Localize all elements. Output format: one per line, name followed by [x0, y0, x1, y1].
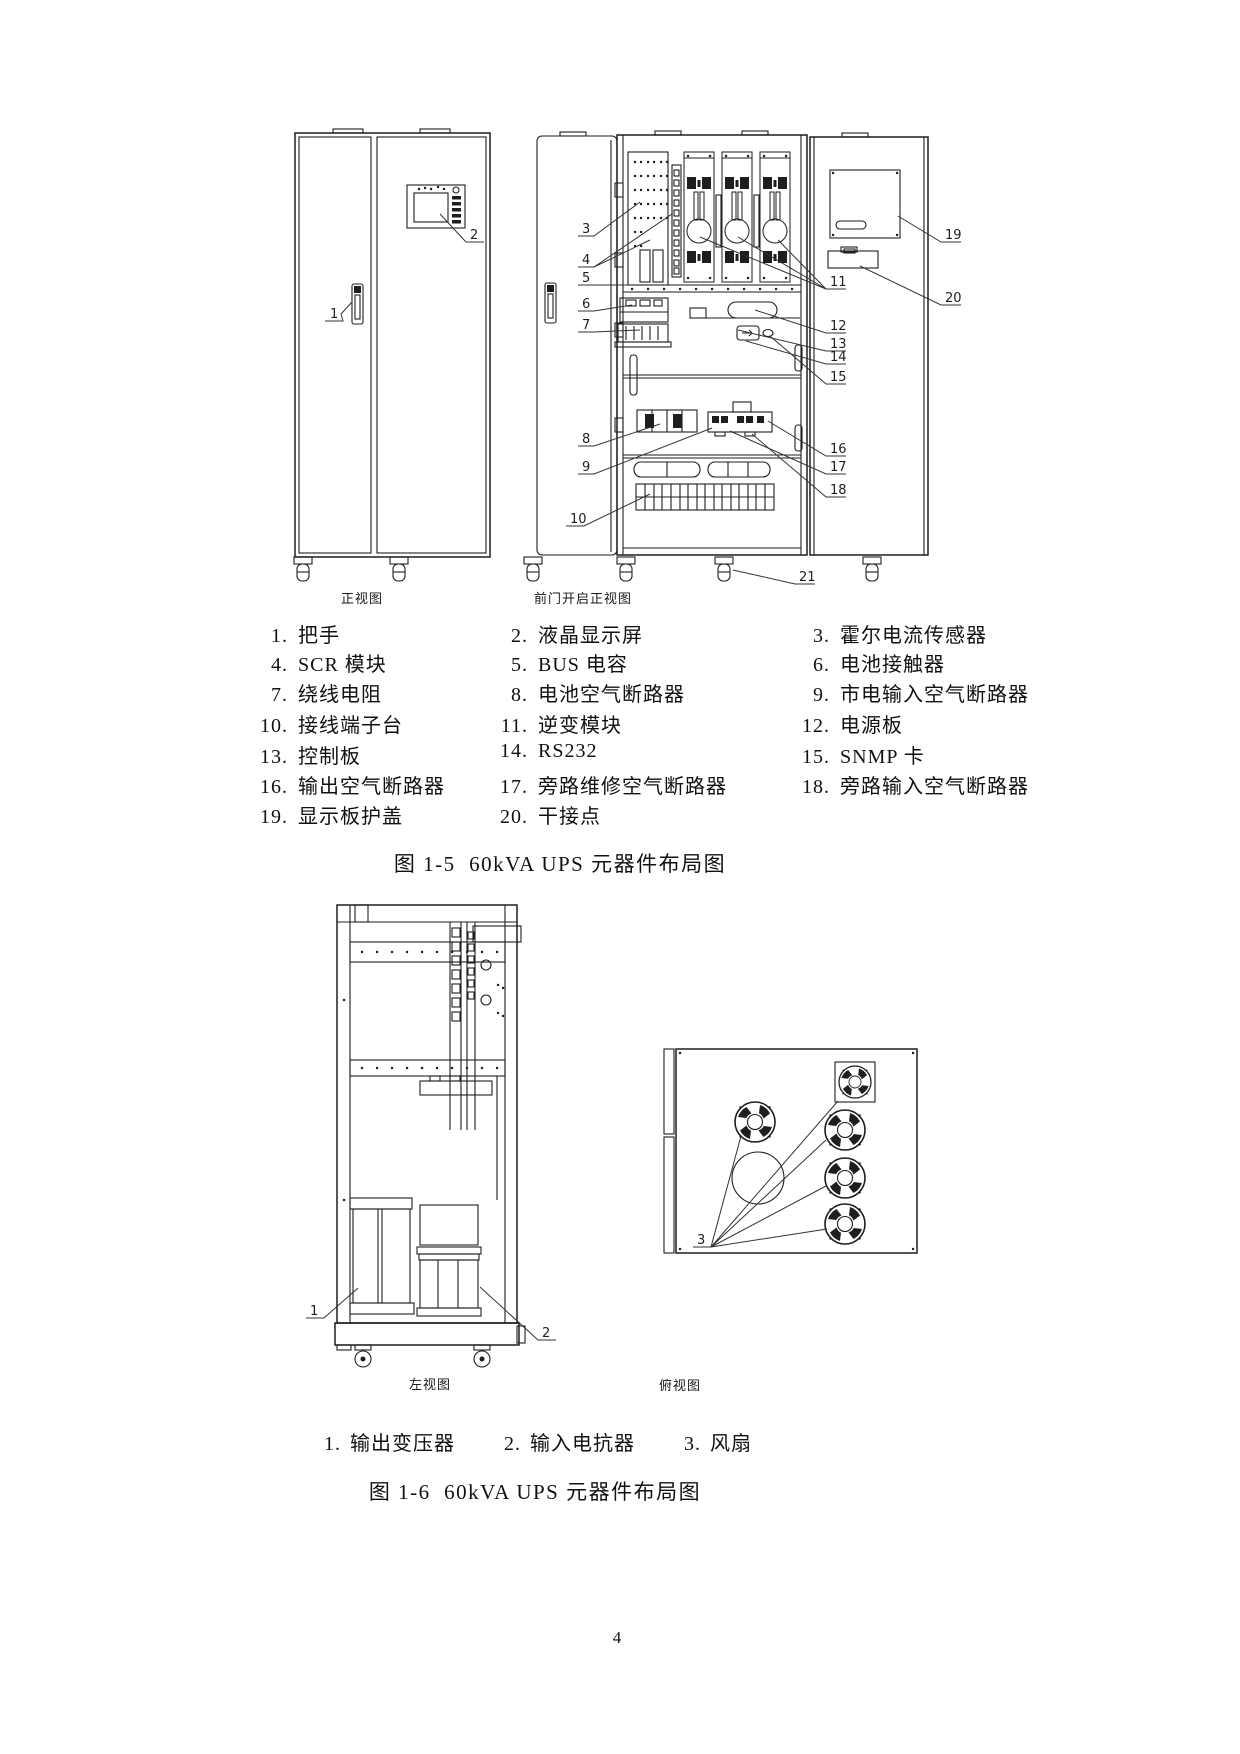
legend-item-1-6-2: 2.输入电抗器: [503, 1427, 635, 1456]
figure-1-6-caption: 图 1-6 60kVA UPS 元器件布局图: [369, 1476, 701, 1506]
manual-page: 1 2 3 4 5 6 7 8 9 10 11 12: [0, 0, 1240, 1754]
legend-item-1-6-3: 3.风扇: [683, 1427, 752, 1456]
legend-item-1-6-1: 1.输出变压器: [323, 1427, 455, 1456]
page-number: 4: [613, 1628, 622, 1648]
figure-1-5-caption: 图 1-5 60kVA UPS 元器件布局图: [394, 848, 726, 878]
